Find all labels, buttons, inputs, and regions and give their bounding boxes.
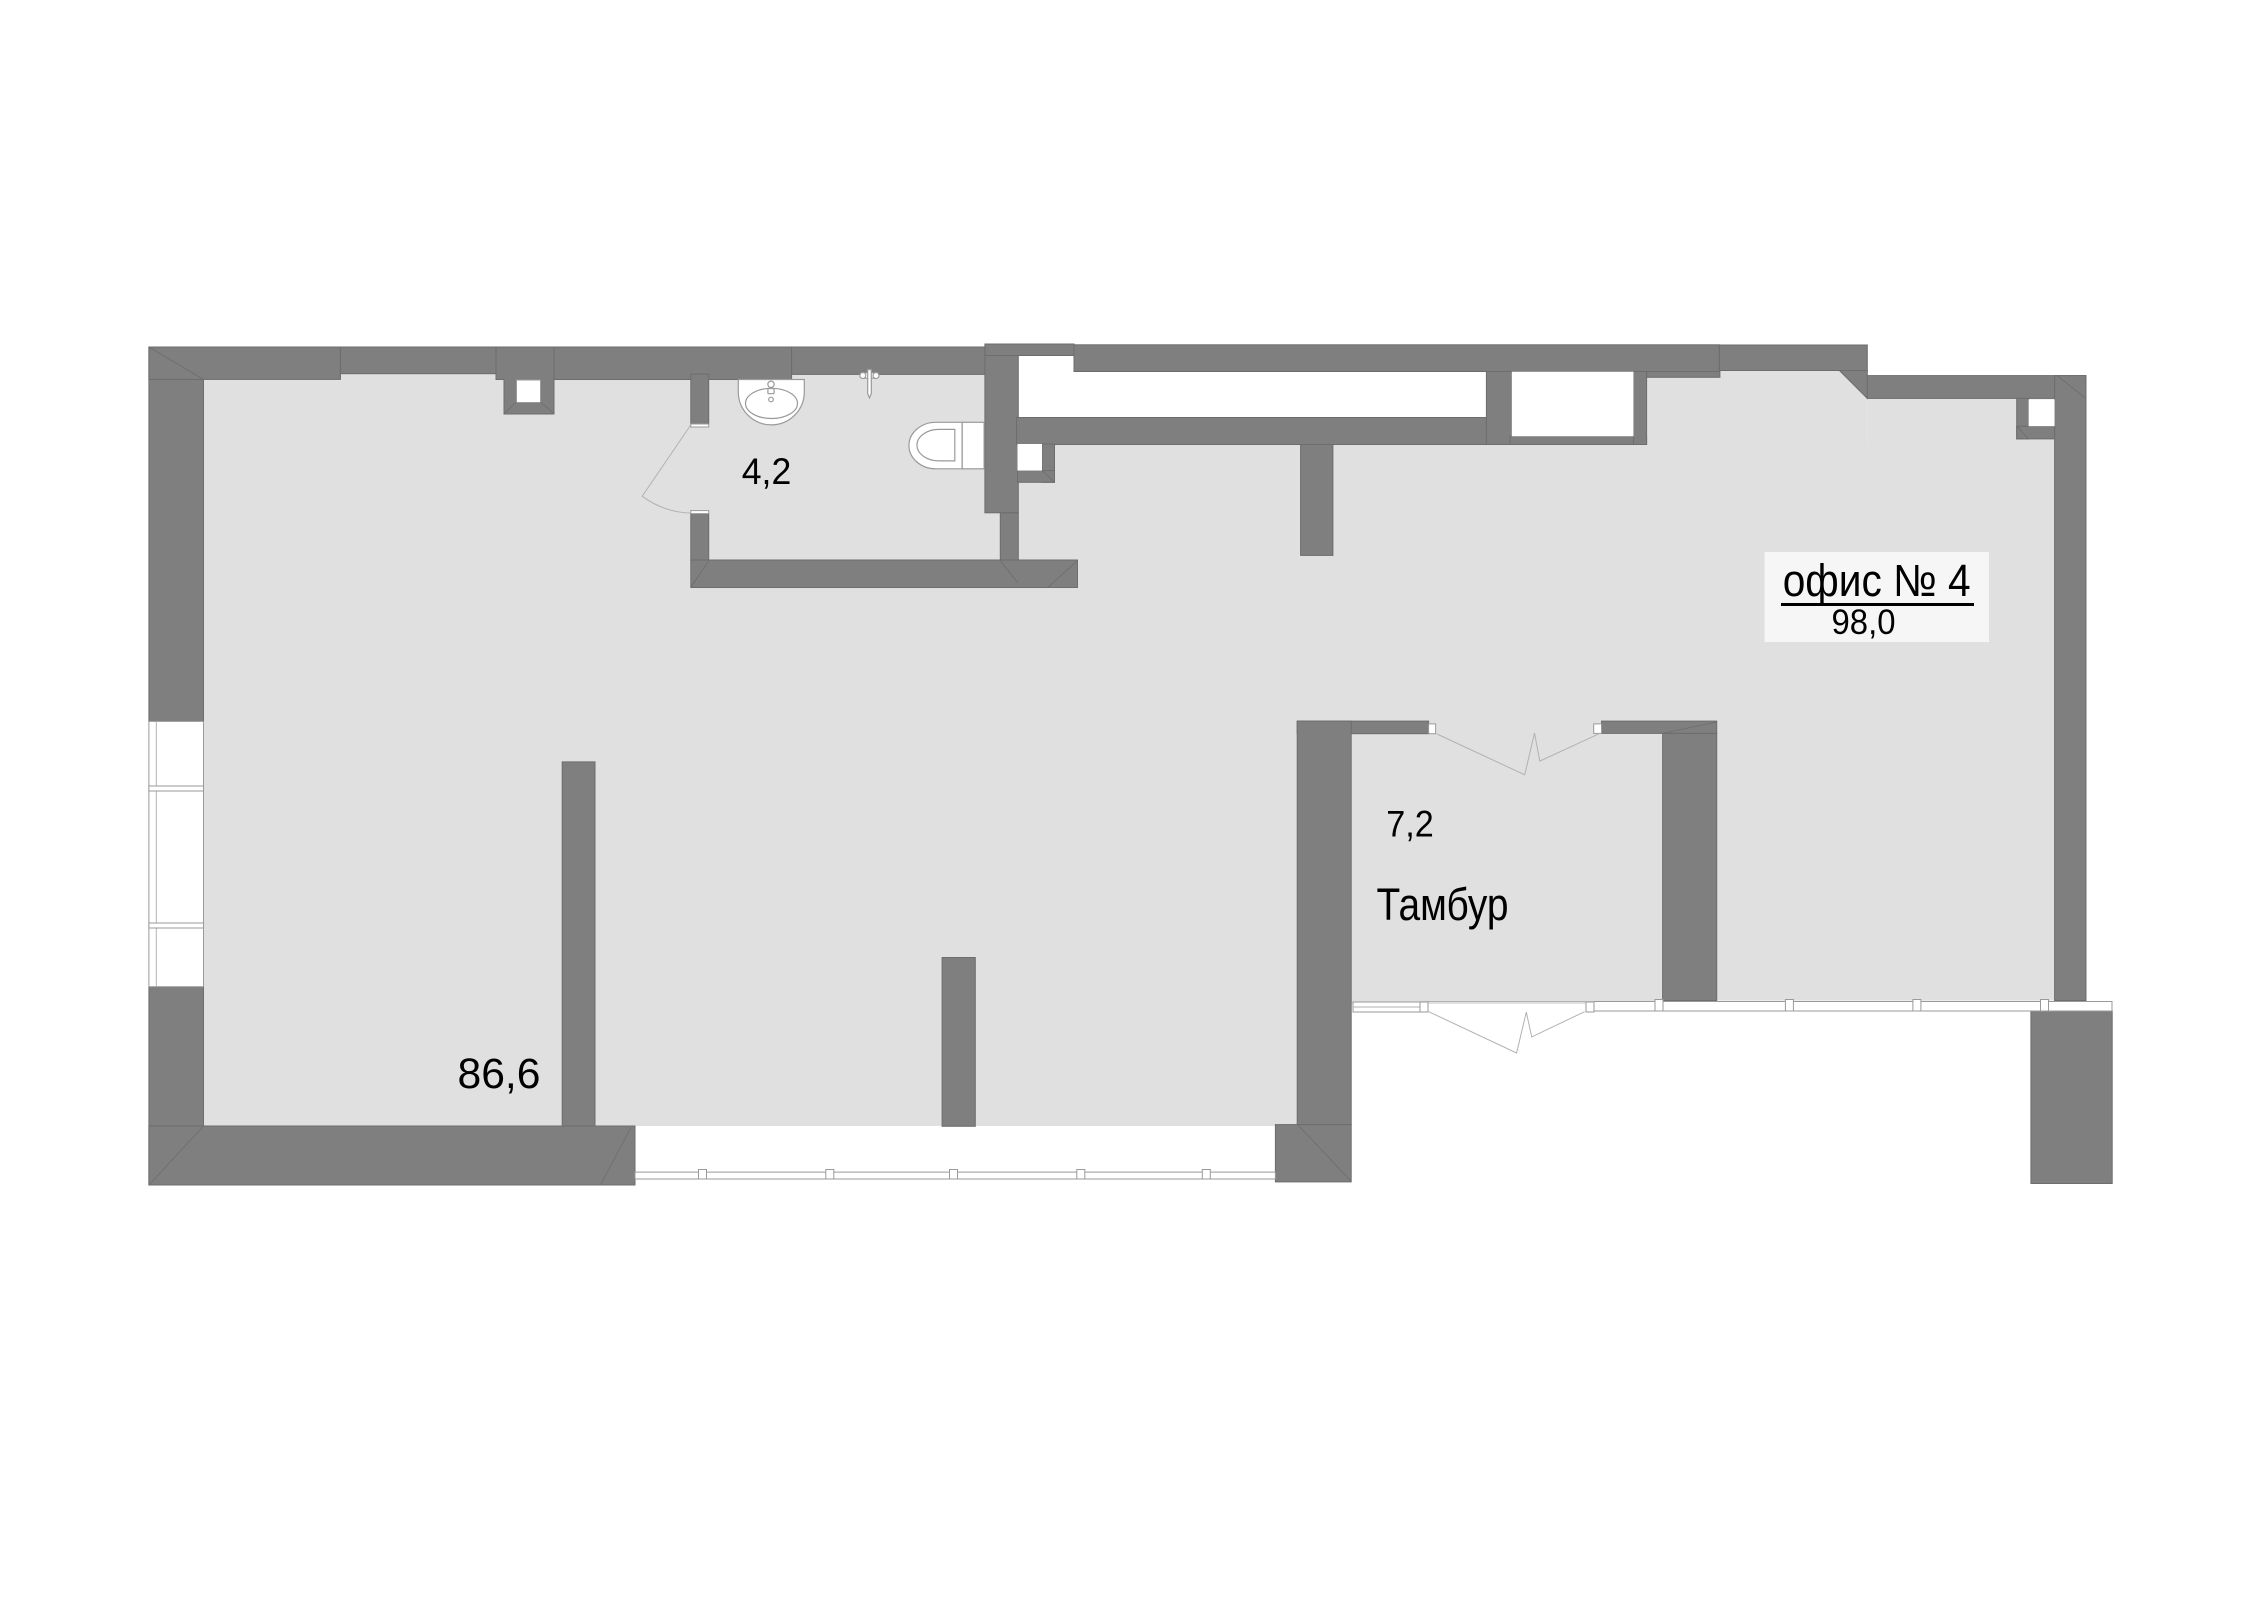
svg-text:98,0: 98,0 <box>1832 603 1896 642</box>
svg-text:4,2: 4,2 <box>742 451 792 492</box>
svg-text:офис № 4: офис № 4 <box>1783 555 1971 606</box>
svg-text:Тамбур: Тамбур <box>1377 879 1509 930</box>
svg-text:86,6: 86,6 <box>458 1050 541 1098</box>
svg-text:7,2: 7,2 <box>1386 803 1434 844</box>
